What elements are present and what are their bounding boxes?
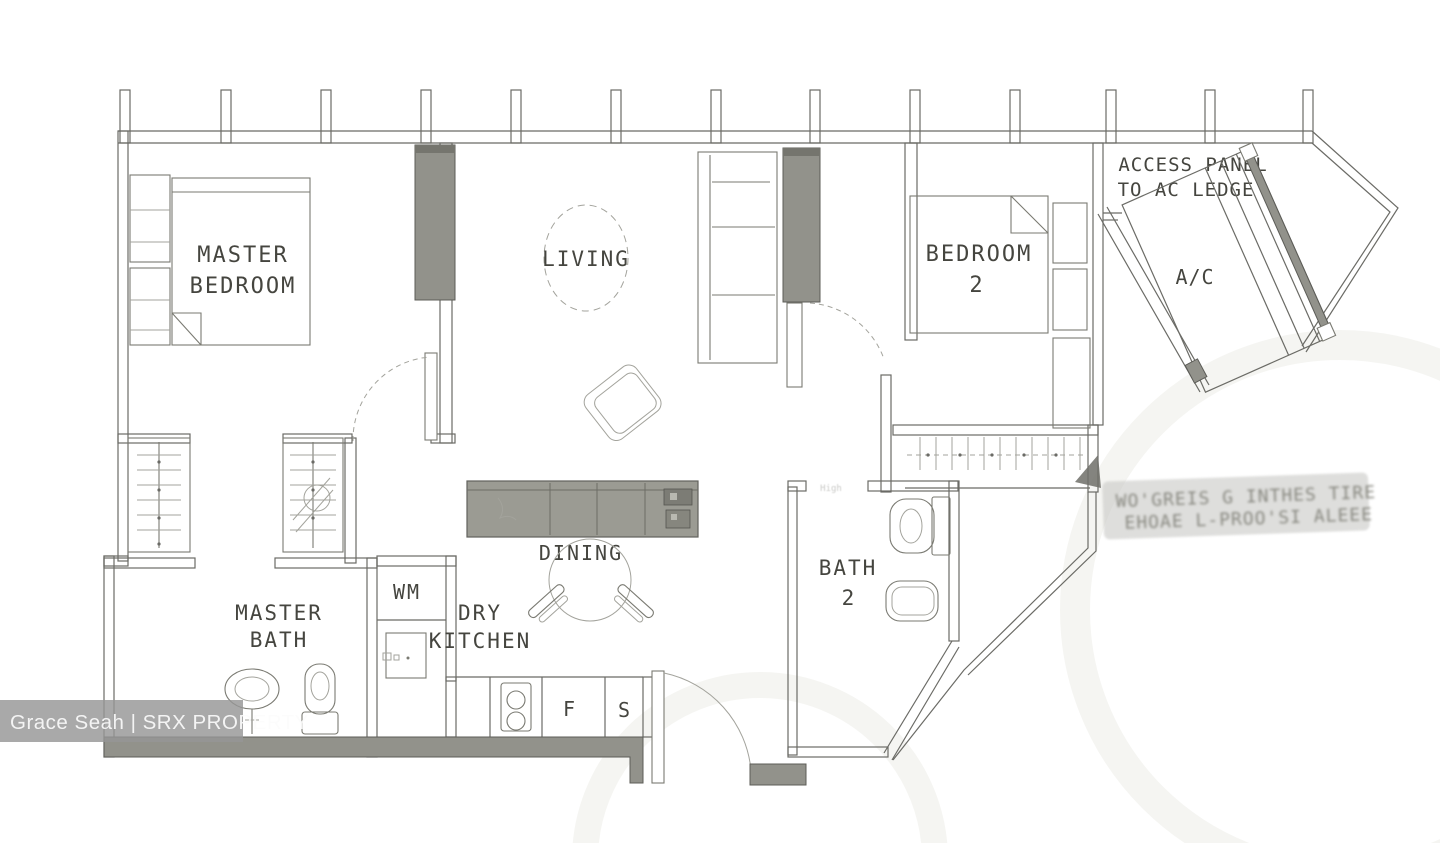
bedside-unit [130,268,170,345]
bath-2: BATH 2 High [819,484,950,621]
bedroom2-door-leaf [787,303,802,387]
floorplan-canvas: MASTER BEDROOM LIVING [0,0,1440,843]
gray-columns [415,145,820,302]
bedroom2-label-1: BEDROOM [926,242,1033,267]
dining-chair [610,583,655,626]
watermark: Grace Seah | SRX PROPERTY [0,700,309,742]
bedroom2-closet [1053,338,1090,428]
watermark-text: Grace Seah | SRX PROPERTY [10,711,309,734]
bedroom2-label-2: 2 [969,273,984,298]
living-room: LIVING [542,152,777,445]
island-sink [664,489,692,505]
bed-fold-corner [1011,196,1048,233]
armchair [580,361,665,445]
floorplan-svg: MASTER BEDROOM LIVING [0,0,1440,843]
bedroom-2: BEDROOM 2 [787,196,1090,428]
master-bedroom: MASTER BEDROOM [130,175,437,441]
dry-kitchen: DRY KITCHEN F S [429,601,654,737]
master-bedroom-label-2: BEDROOM [190,274,297,299]
scan-ghost-arcs [585,345,1440,843]
wm-label: WM [393,580,421,604]
master-bedroom-door-leaf [425,353,437,440]
interior-walls [104,131,1398,760]
dry-kitchen-label-2: KITCHEN [429,629,532,653]
living-label: LIVING [542,247,630,271]
corridor-closet-band [905,437,1101,488]
washing-machine [386,633,426,678]
fridge-label: F [563,697,577,721]
window-mullions [120,90,1313,143]
master-bath-label-1: MASTER [235,601,323,625]
bedside-unit [130,175,170,262]
wm-closet: WM [383,580,426,678]
master-bedroom-label-1: MASTER [197,243,288,268]
window-wall-top [118,90,1313,143]
entrance-threshold [750,764,806,785]
bath2-label-1: BATH [819,556,878,580]
ac-label: A/C [1175,265,1214,289]
bedside-table [1053,203,1087,263]
hob [501,683,531,731]
toilet-2 [890,497,950,555]
bath2-faint-annotation: High [820,484,842,494]
bedside-table [1053,269,1087,330]
sofa [698,152,777,363]
illegible-stamp: WO'GREIS G INTHES TIRE EHOAE L-PROO'SI A… [1102,472,1377,540]
dining-chair [527,583,572,626]
master-bath-label-2: BATH [250,628,309,652]
bottom-wall [104,737,643,783]
bed-fold-corner [172,313,201,345]
kitchen-island-counter [467,481,698,537]
master-bedroom-door-swing [353,357,430,441]
bath2-label-2: 2 [842,586,857,610]
sink-label: S [618,698,632,722]
bath2-sink [886,581,938,621]
master-closet-vestibule [128,438,343,552]
island-sink-2 [666,510,690,528]
wardrobe-column-living [415,145,455,300]
wardrobe-column-bedroom2 [783,148,820,302]
entrance-door-leaf [652,671,664,783]
dry-kitchen-label-1: DRY [458,601,502,625]
bedroom2-door-swing [810,303,884,359]
